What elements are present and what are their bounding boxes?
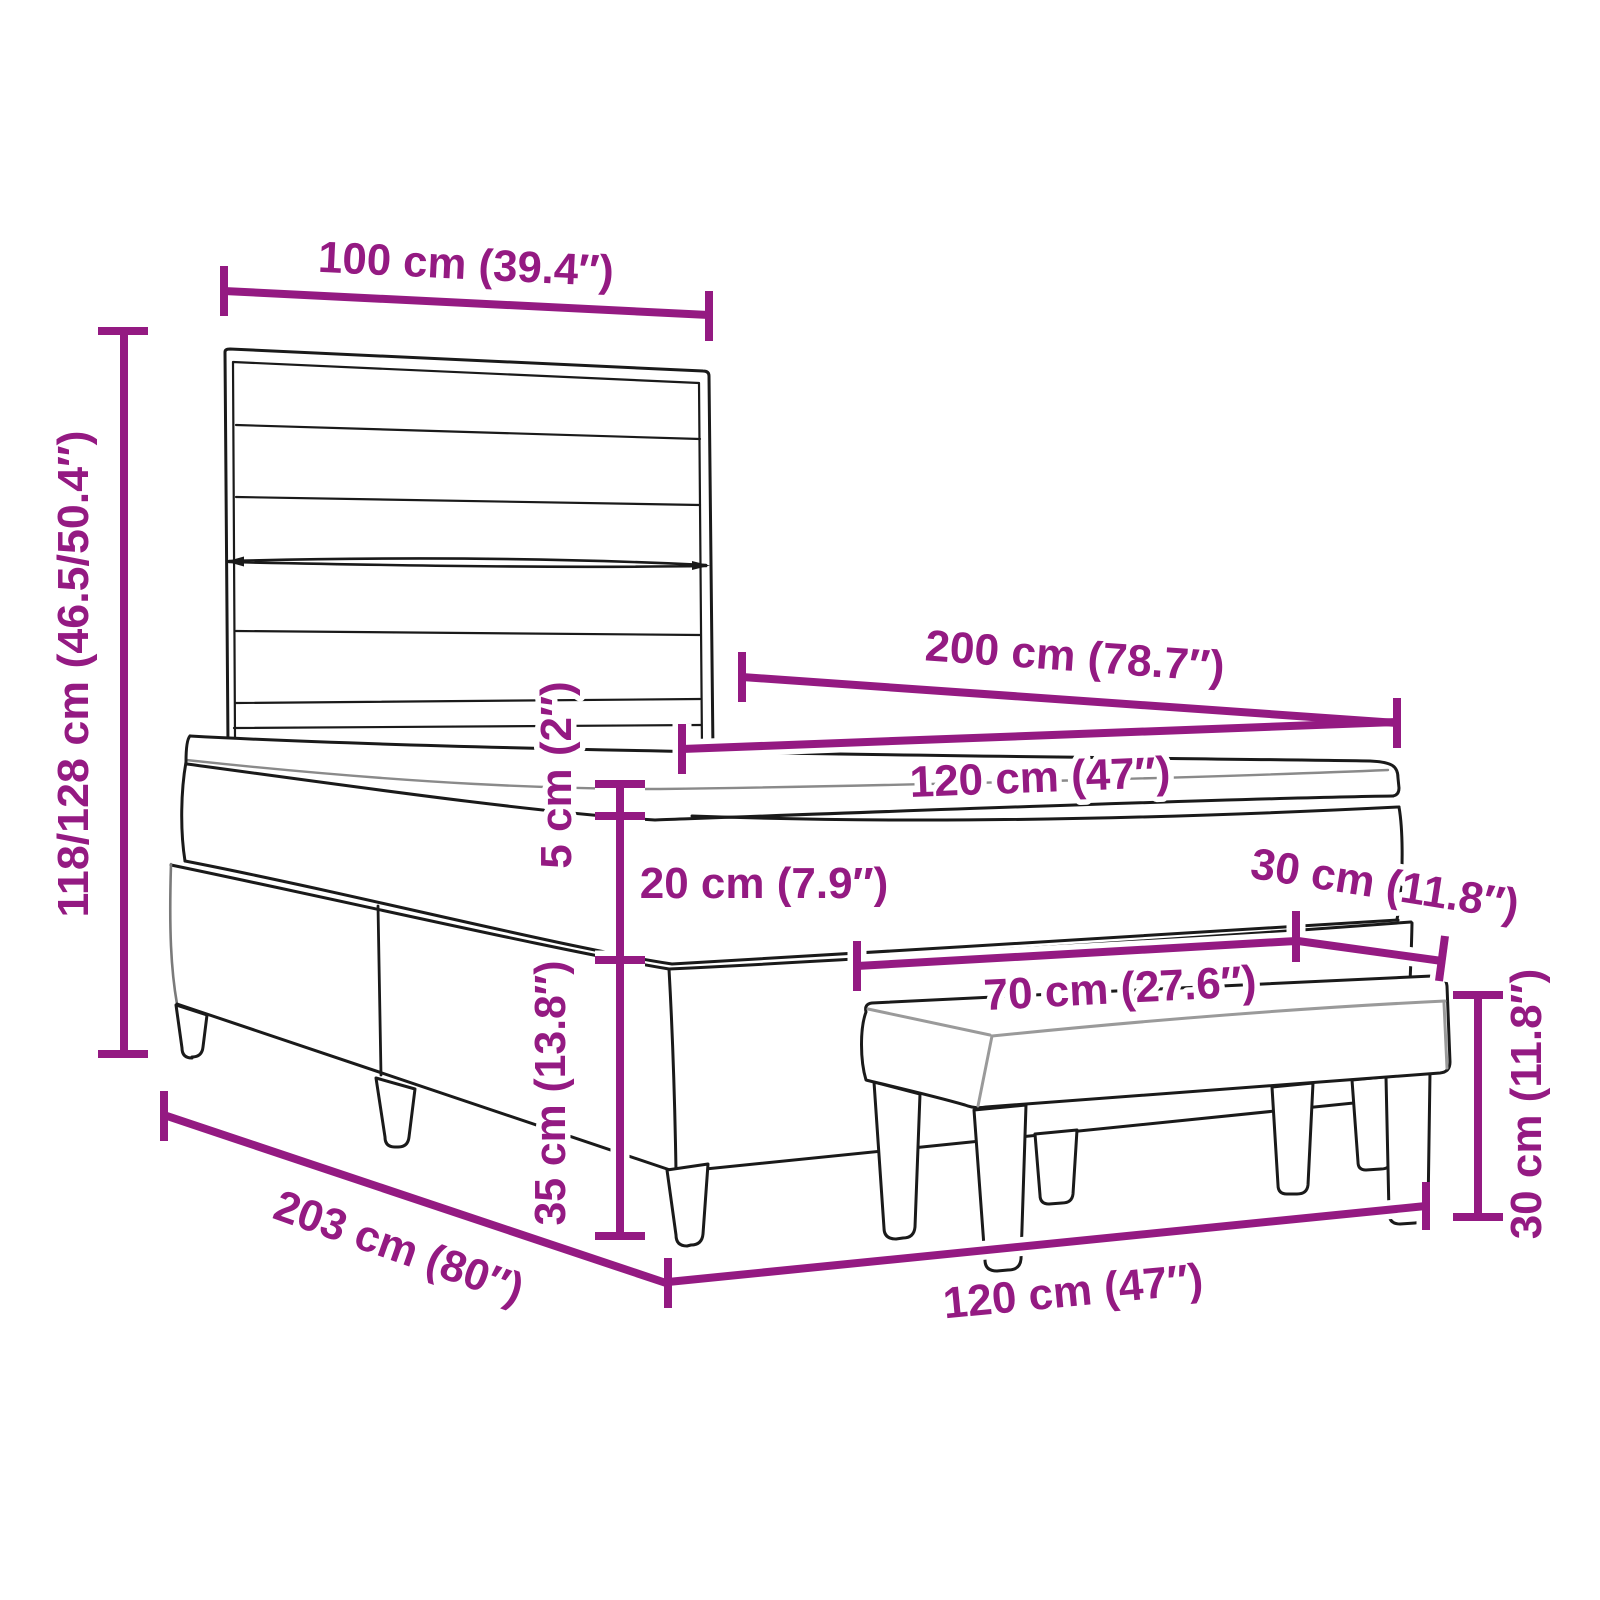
svg-text:30 cm (11.8″): 30 cm (11.8″) [1502,969,1551,1240]
svg-text:20 cm (7.9″): 20 cm (7.9″) [640,859,889,908]
svg-text:5 cm (2″): 5 cm (2″) [532,681,581,868]
svg-text:120 cm (47″): 120 cm (47″) [909,748,1171,807]
svg-text:35 cm (13.8″): 35 cm (13.8″) [526,961,575,1226]
svg-text:118/128 cm (46.5/50.4″): 118/128 cm (46.5/50.4″) [49,430,98,917]
